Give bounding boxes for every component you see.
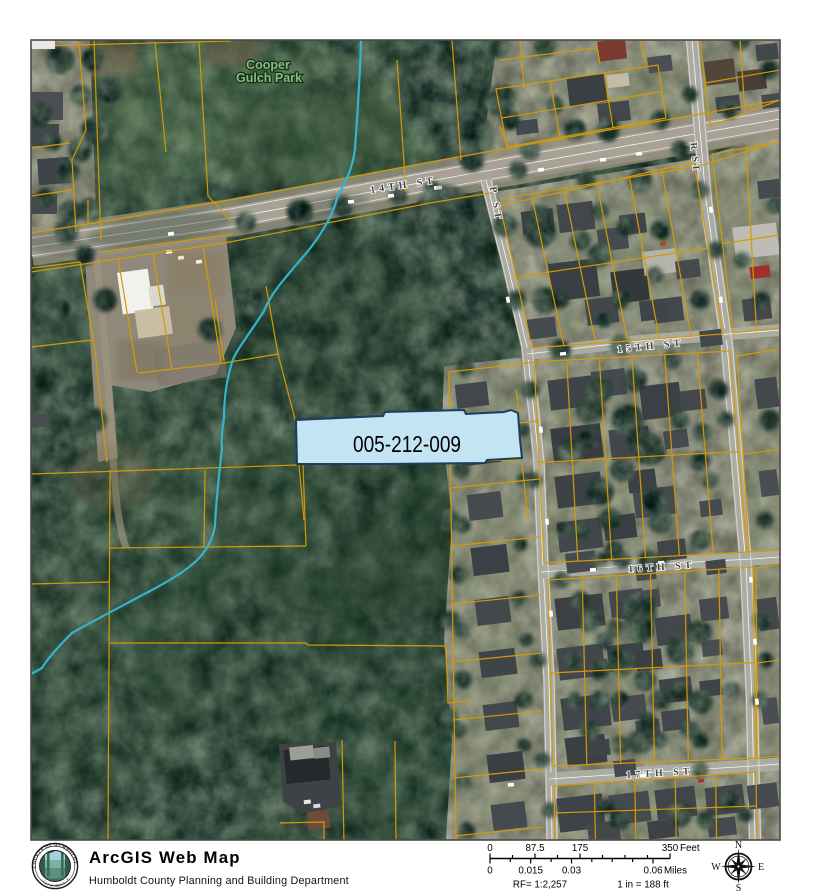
svg-text:87.5: 87.5 — [525, 843, 545, 854]
svg-text:Feet: Feet — [680, 843, 700, 854]
svg-text:W: W — [711, 862, 721, 873]
svg-text:350: 350 — [662, 843, 679, 854]
svg-text:E: E — [758, 862, 764, 873]
svg-text:Gulch Park: Gulch Park — [236, 71, 302, 85]
svg-text:175: 175 — [572, 843, 589, 854]
svg-text:1 in = 188 ft: 1 in = 188 ft — [617, 880, 669, 891]
svg-text:Miles: Miles — [664, 866, 687, 877]
svg-text:0.03: 0.03 — [562, 866, 582, 877]
svg-text:Cooper: Cooper — [246, 58, 290, 72]
svg-text:S: S — [736, 883, 742, 892]
svg-text:N: N — [735, 840, 742, 851]
svg-text:005-212-009: 005-212-009 — [353, 431, 461, 457]
svg-text:0.015: 0.015 — [518, 866, 543, 877]
svg-text:0.06: 0.06 — [643, 866, 663, 877]
svg-text:Humboldt County Planning and B: Humboldt County Planning and Building De… — [89, 875, 349, 887]
svg-text:ArcGIS Web Map: ArcGIS Web Map — [89, 848, 241, 867]
svg-text:0: 0 — [487, 866, 493, 877]
svg-text:0: 0 — [487, 843, 493, 854]
svg-text:RF= 1:2,257: RF= 1:2,257 — [513, 880, 567, 891]
